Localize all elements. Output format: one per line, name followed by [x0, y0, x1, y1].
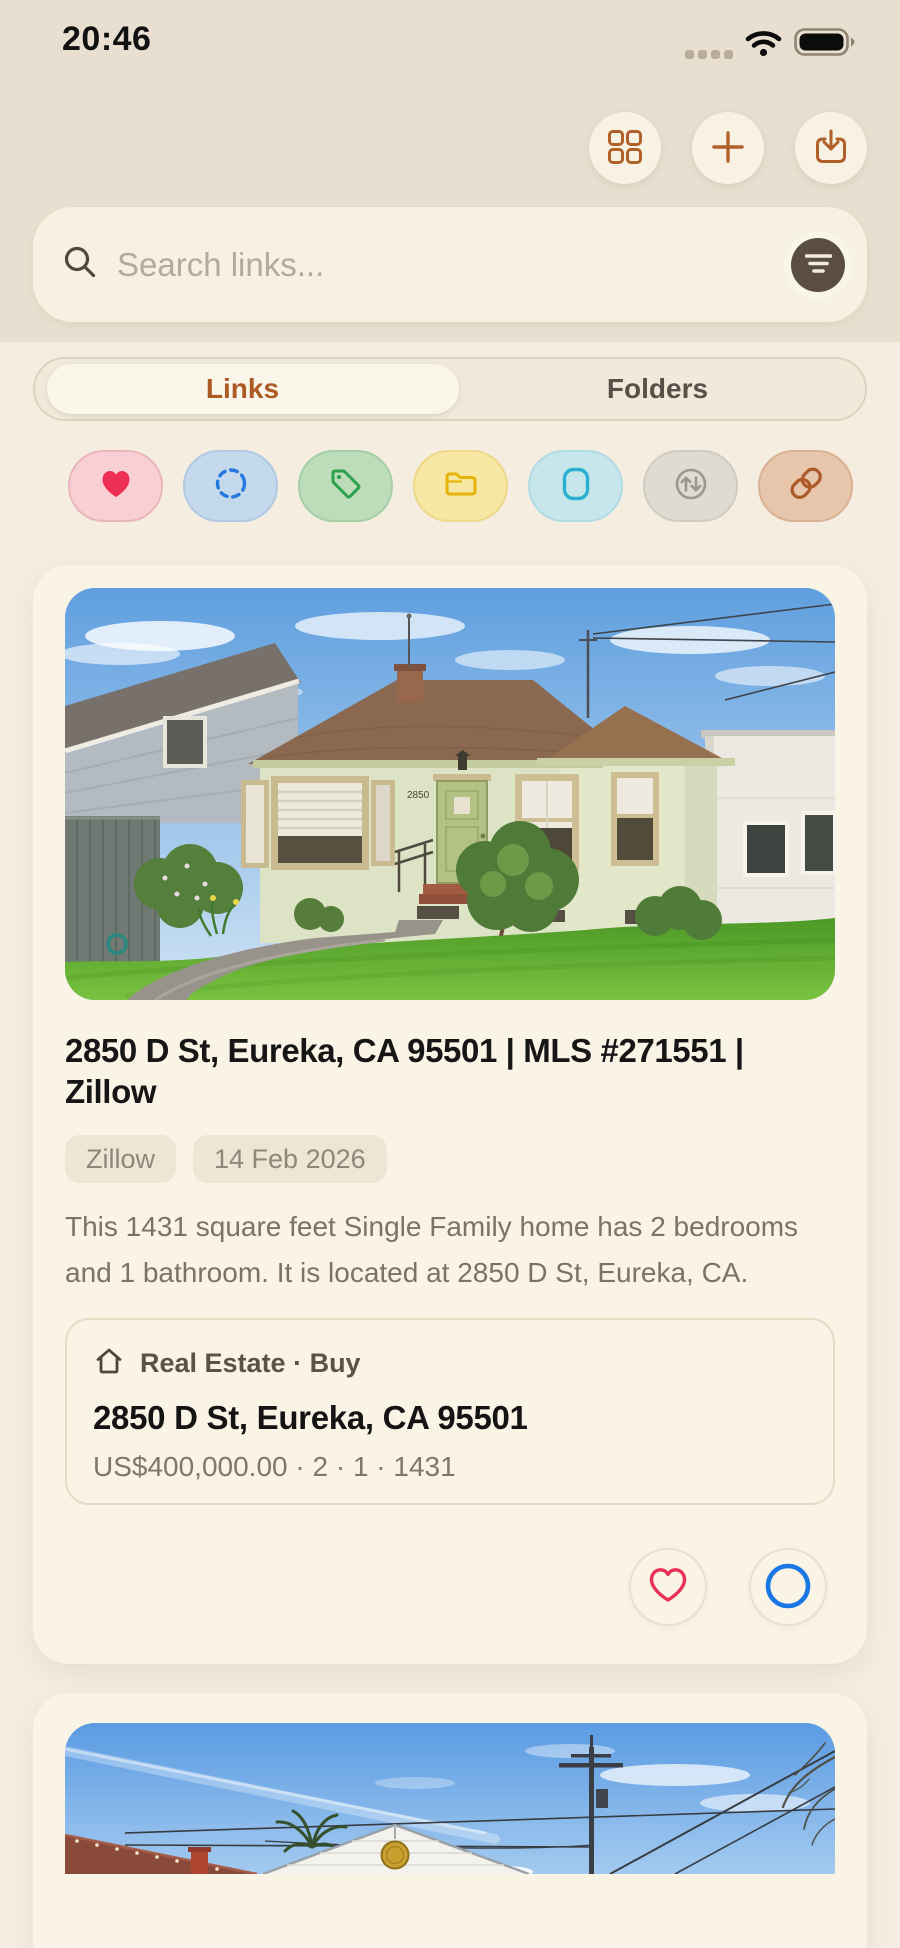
grid-icon: [607, 129, 643, 168]
search-icon: [63, 245, 97, 284]
battery-icon: [794, 27, 856, 62]
search-filter-button[interactable]: [791, 238, 845, 292]
folder-icon: [443, 466, 479, 506]
real-estate-category: Real Estate · Buy: [140, 1348, 361, 1379]
house-number: 2850: [407, 790, 430, 801]
search-filter-ring: [784, 231, 852, 299]
link-title: 2850 D St, Eureka, CA 95501 | MLS #27155…: [65, 1030, 835, 1112]
filter-chip-apps[interactable]: [528, 450, 623, 522]
filter-chip-unread[interactable]: [183, 450, 278, 522]
link-card-photo[interactable]: 2850: [65, 588, 835, 1000]
import-button[interactable]: [795, 112, 867, 184]
toolbar: [589, 112, 867, 184]
filter-chip-sort[interactable]: [643, 450, 738, 522]
add-link-button[interactable]: [692, 112, 764, 184]
filter-chip-links[interactable]: [758, 450, 853, 522]
sort-arrows-icon: [673, 466, 709, 507]
date-badge: 14 Feb 2026: [193, 1135, 387, 1183]
filter-chip-folders[interactable]: [413, 450, 508, 522]
house-photo-illustration: 2850: [65, 588, 835, 1000]
app-screen: 20:46: [0, 0, 900, 1948]
search-input[interactable]: [115, 245, 777, 285]
filter-lines-icon: [805, 253, 832, 277]
real-estate-address: 2850 D St, Eureka, CA 95501: [93, 1399, 807, 1437]
wifi-icon: [744, 27, 783, 62]
heart-outline-icon: [647, 1567, 689, 1608]
tab-folders[interactable]: Folders: [450, 359, 865, 419]
dashed-circle-icon: [213, 466, 249, 506]
link-card[interactable]: [33, 1693, 867, 1948]
links-folders-tabs: Links Folders: [33, 357, 867, 421]
source-badge: Zillow: [65, 1135, 176, 1183]
filter-chip-row: [0, 450, 900, 522]
tab-links[interactable]: Links: [35, 359, 450, 419]
cellular-dots-icon: [685, 50, 733, 59]
link-description: This 1431 square feet Single Family home…: [65, 1204, 843, 1296]
download-tray-icon: [813, 128, 849, 169]
plus-icon: [711, 130, 745, 167]
card-action-row: [65, 1548, 835, 1626]
link-card-photo[interactable]: [65, 1723, 835, 1874]
favorite-button[interactable]: [629, 1548, 707, 1626]
search-bar: [33, 207, 867, 322]
badge-row: Zillow 14 Feb 2026: [65, 1135, 835, 1183]
circle-outline-icon: [765, 1563, 811, 1612]
filter-chip-favorites[interactable]: [68, 450, 163, 522]
heart-icon: [98, 467, 134, 506]
real-estate-detail-card[interactable]: Real Estate · Buy 2850 D St, Eureka, CA …: [65, 1318, 835, 1505]
link-icon: [788, 466, 824, 507]
status-time: 20:46: [62, 20, 151, 59]
real-estate-meta: US$400,000.00 · 2 · 1 · 1431: [93, 1451, 807, 1483]
rounded-square-icon: [558, 466, 594, 507]
status-icons: [685, 28, 856, 62]
grid-view-button[interactable]: [589, 112, 661, 184]
tag-icon: [328, 466, 364, 507]
header: 20:46: [0, 0, 900, 342]
filter-chip-tags[interactable]: [298, 450, 393, 522]
house-icon: [93, 1345, 125, 1382]
select-button[interactable]: [749, 1548, 827, 1626]
link-card[interactable]: 2850: [33, 565, 867, 1664]
sky-photo-illustration: [65, 1723, 835, 1874]
